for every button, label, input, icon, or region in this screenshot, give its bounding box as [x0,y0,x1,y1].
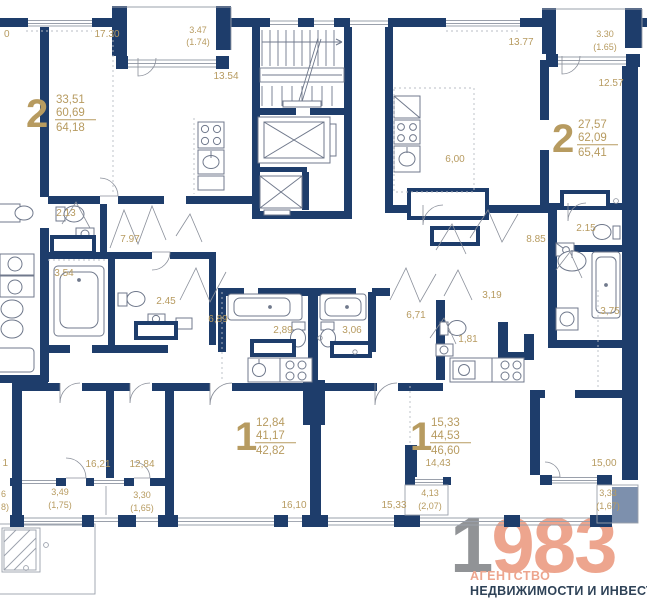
label-balc-333: 3,33 [599,488,617,498]
label-balc-347: 3.47 [189,25,207,35]
label-room-1354: 13.54 [213,71,238,82]
window [28,18,92,27]
window [446,18,520,27]
kitchen-cabinet [198,176,224,190]
logo-line1: АГЕНТСТВО [470,569,550,583]
label-hall-797: 7.97 [120,234,140,245]
window [314,18,334,27]
kitchen-counter-right [450,358,524,382]
window [350,18,388,27]
apt-living-area: 27,57 [578,119,607,131]
label-bath-306: 3,06 [342,325,362,336]
label-wc-245: 2.45 [156,296,176,307]
label-hall-671: 6,71 [406,310,426,321]
apt-rooms-count: 1 [235,415,257,459]
label-hall-319: 3,19 [482,290,502,301]
elevator-shaft-large [258,117,336,163]
apartment-2-left: 2 33,51 60,69 64,18 [26,92,96,136]
sink-icon [176,318,192,329]
apt-area: 60,69 [56,107,85,119]
label-balc-333k: (1,67) [596,501,620,511]
elevator-shaft-small [260,176,302,215]
window [22,479,56,485]
toilet-215 [593,225,620,240]
label-edge-low2: 8) [1,502,9,512]
label-kitchen-600: 6,00 [445,154,465,165]
label-wc-213: 2.13 [56,208,76,219]
label-bath-289: 2,89 [273,325,293,336]
label-balc-413: 4,13 [421,488,439,498]
toilet-245 [118,292,145,307]
sink-181 [436,344,453,356]
window [94,479,124,485]
label-room-1377: 13.77 [508,37,533,48]
label-balc-330k: (1.65) [593,42,617,52]
apt-living-area: 15,33 [431,417,460,429]
label-edge-mid: 1 [2,458,8,469]
label-room-1533: 15,33 [381,500,406,511]
apt-area: 44,53 [431,430,460,442]
apt-rooms-count: 2 [26,92,48,136]
window [415,477,443,485]
label-balc-330b: 3,30 [133,490,151,500]
bathtub-306 [320,294,366,320]
washing-machine [556,308,578,330]
apt-rooms-count: 1 [410,415,432,459]
window [270,18,298,27]
apt-living-area: 12,84 [256,417,285,429]
label-room-1621: 16,21 [85,459,110,470]
label-balc-349: 3,49 [51,487,69,497]
apt-area: 62,09 [578,132,607,144]
bathtub-289 [228,294,302,320]
label-room-1284: 12,84 [129,459,154,470]
balcony-347 [112,7,231,69]
apartment-2-right: 2 27,57 62,09 65,41 [552,117,618,161]
label-bath-354: 3.54 [54,268,74,279]
label-hall-689: 6,89 [208,314,228,325]
kitchen-sink [198,150,224,174]
hatched-utility-box [0,524,95,594]
label-edge-top: 0 [4,29,10,40]
label-edge-low1: 6 [1,489,6,499]
label-room-1443: 14,43 [425,458,450,469]
apt-total-area: 46,60 [431,445,460,457]
apt-living-area: 33,51 [56,94,85,106]
stairwell [260,30,344,106]
label-room-1257: 12.57 [598,78,623,89]
label-balc-330: 3.30 [596,29,614,39]
label-balc-349k: (1,75) [48,500,72,510]
apt-rooms-count: 2 [552,117,574,161]
kitchen-stove [198,122,224,148]
kitchen-counter-left [248,358,312,382]
label-balc-347k: (1.74) [186,37,210,47]
label-wc-215: 2.15 [576,223,596,234]
label-room-1730: 17.30 [94,29,119,40]
label-room-1500: 15,00 [591,458,616,469]
label-bath-375: 3,75 [600,306,620,317]
apt-total-area: 42,82 [256,445,285,457]
apt-total-area: 64,18 [56,122,85,134]
apartment-1-right: 1 15,33 44,53 46,60 [410,415,471,459]
label-room-1610: 16,10 [281,500,306,511]
neighbor-fixtures [0,204,34,372]
label-hall-885: 8.85 [526,234,546,245]
apartment-1-left: 1 12,84 41,17 42,82 [235,415,296,459]
label-balc-413k: (2,07) [418,501,442,511]
elevators [252,101,352,215]
apt-total-area: 65,41 [578,147,607,159]
apt-area: 41,17 [256,430,285,442]
logo-line2: НЕДВИЖИМОСТИ И ИНВЕСТИЦИЙ [470,583,647,598]
floor-plan-drawing: 1983 АГЕНТСТВО НЕДВИЖИМОСТИ И ИНВЕСТИЦИЙ [0,0,647,600]
kitchen-right-apartment [394,96,420,172]
label-wc-181: 1,81 [458,334,478,345]
label-balc-330bk: (1,65) [130,503,154,513]
floor-plan-page: 1983 АГЕНТСТВО НЕДВИЖИМОСТИ И ИНВЕСТИЦИЙ [0,0,647,600]
